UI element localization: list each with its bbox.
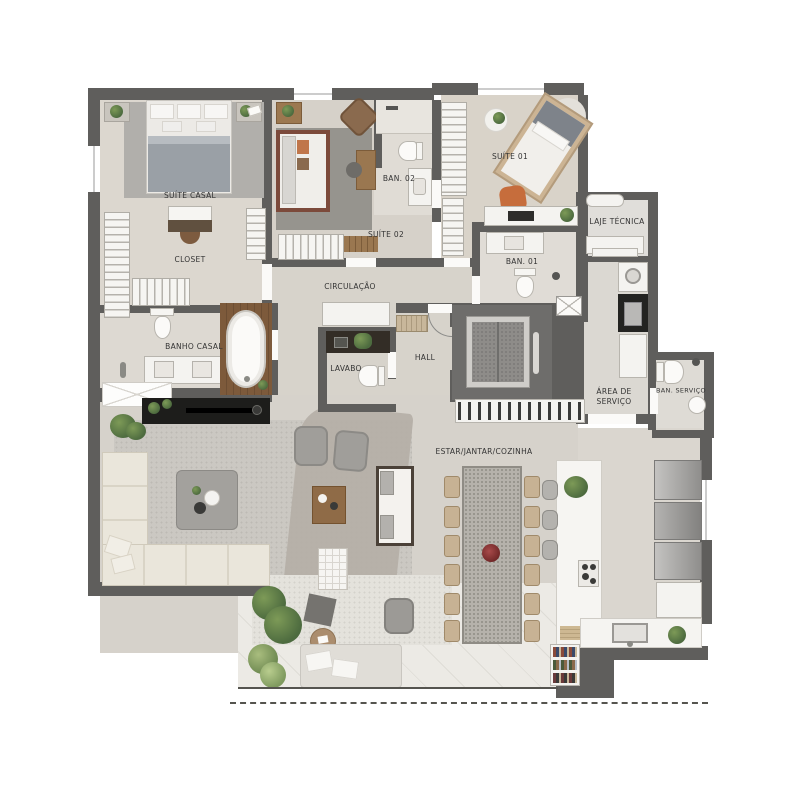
dining-chair — [524, 620, 540, 642]
shower-head-icon — [692, 358, 700, 366]
toilet — [656, 362, 664, 382]
bed-pillow — [297, 140, 309, 154]
wardrobe — [278, 234, 344, 260]
books — [553, 673, 577, 683]
dining-chair — [524, 564, 540, 586]
door-lavabo — [388, 352, 396, 378]
burner — [582, 564, 588, 570]
armchair — [332, 430, 369, 473]
dining-chair — [444, 593, 460, 615]
tv — [186, 408, 256, 413]
room-label-ban-servico: BAN. SERVIÇO — [656, 387, 706, 396]
plant — [192, 486, 201, 495]
tray — [194, 502, 206, 514]
kitchen-sink — [612, 623, 648, 643]
toilet — [154, 316, 171, 339]
bar-stool — [542, 510, 558, 530]
plant — [282, 105, 294, 117]
books — [553, 647, 577, 657]
room-label-circulacao: CIRCULAÇÃO — [324, 282, 376, 292]
dining-chair — [444, 506, 460, 528]
wood-side-table — [312, 486, 346, 524]
laptop — [508, 211, 534, 221]
closet-rack — [132, 278, 190, 306]
plant — [493, 112, 505, 124]
console-table — [322, 302, 390, 326]
door-ban-02 — [432, 180, 441, 208]
plant — [564, 476, 588, 498]
doormat — [396, 315, 428, 332]
door-ban-01 — [472, 276, 480, 304]
burner — [590, 578, 596, 584]
tub-faucet — [244, 376, 250, 382]
cabinet — [619, 334, 647, 378]
dining-chair — [524, 593, 540, 615]
closet-wardrobe — [246, 208, 266, 260]
wall — [556, 684, 614, 698]
sofa-cushion — [380, 471, 394, 495]
wall — [90, 88, 272, 100]
toilet — [514, 268, 536, 276]
decor-item — [330, 502, 338, 510]
dining-chair — [524, 506, 540, 528]
room-label-suite-casal: SUÍTE CASAL — [164, 191, 216, 201]
room-label-area-servico-line1: ÁREA DE — [596, 387, 631, 397]
room-label-hall: HALL — [415, 353, 435, 363]
desk-chair — [346, 162, 362, 178]
cooktop — [578, 560, 599, 587]
toilet — [150, 308, 174, 316]
bed-pillow — [282, 136, 296, 204]
room-label-closet: CLOSET — [175, 255, 206, 265]
plant — [110, 105, 123, 118]
sink-basin — [504, 236, 524, 250]
cabinet — [656, 582, 702, 618]
wall — [652, 430, 714, 438]
plant — [148, 402, 160, 414]
bar-stool — [542, 540, 558, 560]
room-label-laje-tecnica: LAJE TÉCNICA — [589, 217, 644, 227]
wine-rack — [456, 400, 584, 422]
toilet — [664, 360, 684, 384]
bed-pillow — [150, 104, 174, 119]
wall — [318, 404, 396, 412]
wardrobe — [441, 102, 467, 196]
speaker — [252, 405, 262, 415]
laundry-sink — [624, 302, 642, 326]
terrace-armchair — [384, 598, 414, 634]
terrace-ottoman — [303, 593, 336, 626]
entry-door — [428, 304, 452, 313]
shower-fixture — [120, 362, 126, 378]
bed-pillow — [177, 104, 201, 119]
wall — [88, 88, 100, 338]
room-label-banho-casal: BANHO CASAL — [165, 342, 223, 352]
grid-ottoman — [318, 548, 348, 590]
burner — [582, 573, 589, 580]
room-label-ban-02: BAN. 02 — [383, 174, 415, 184]
dining-chair — [444, 476, 460, 498]
toilet — [416, 142, 423, 160]
shower-head-icon — [386, 106, 398, 110]
sink-basin — [154, 361, 174, 378]
closet-dresser-front — [168, 220, 212, 232]
plant — [354, 333, 372, 349]
bar-stool — [542, 480, 558, 500]
burner — [590, 564, 596, 570]
closet-rack — [104, 212, 130, 318]
wall — [88, 410, 100, 584]
toilet — [398, 141, 417, 161]
dining-chair — [524, 535, 540, 557]
plant — [258, 380, 268, 390]
plant — [162, 399, 172, 409]
door-suite-02 — [346, 258, 376, 267]
plant — [126, 422, 146, 440]
dining-chair — [444, 620, 460, 642]
door-suite-casal — [262, 264, 272, 300]
wall — [648, 192, 658, 360]
books — [553, 660, 577, 670]
room-label-ban-01: BAN. 01 — [506, 257, 538, 267]
room-label-area-servico-line2: SERVIÇO — [596, 397, 631, 407]
room-label-lavabo: LAVABO — [330, 364, 362, 374]
window — [478, 83, 544, 95]
tray — [204, 490, 220, 506]
sofa-cushion — [380, 515, 394, 539]
tall-cabinet-oven — [654, 502, 702, 540]
tall-cabinet-fridge — [654, 460, 702, 500]
floor-plan: SUÍTE CASAL CLOSET SUÍTE 02 BAN. 02 SUÍT… — [0, 0, 800, 795]
flower-centerpiece — [482, 544, 500, 562]
room-label-area-servico: ÁREA DE SERVIÇO — [596, 387, 631, 407]
equipment — [592, 248, 638, 257]
plant — [264, 606, 302, 644]
bed-blanket — [148, 136, 230, 192]
bed-pillow — [196, 121, 216, 132]
sink-basin — [334, 337, 348, 348]
room-label-suite-01: SUÍTE 01 — [492, 152, 528, 162]
sink-basin — [192, 361, 212, 378]
terrace-boundary-dashed — [230, 702, 708, 704]
plant — [260, 662, 286, 688]
window — [88, 146, 100, 192]
equipment — [586, 194, 624, 207]
room-label-suite-02: SUÍTE 02 — [368, 230, 404, 240]
door-suite-01 — [444, 258, 470, 267]
shower-area — [376, 100, 432, 134]
armchair — [294, 426, 328, 466]
terrace-edge-line — [238, 687, 558, 689]
elevator-handrail — [533, 332, 539, 374]
sink-basin — [688, 396, 706, 414]
room-label-estar-jantar-cozinha: ESTAR/JANTAR/COZINHA — [436, 447, 533, 457]
toilet — [516, 276, 534, 298]
faucet — [627, 641, 633, 647]
bed-pillow — [297, 158, 309, 170]
basket — [560, 626, 580, 640]
door-area-servico — [588, 414, 636, 424]
decor-item — [318, 494, 327, 503]
tall-cabinet — [654, 542, 702, 580]
dining-chair — [444, 564, 460, 586]
bed-pillow — [204, 104, 228, 119]
shower-head-icon — [552, 272, 560, 280]
toilet — [378, 366, 385, 386]
bed-pillow — [162, 121, 182, 132]
washing-machine-door — [625, 268, 641, 284]
elevator-door-split — [497, 322, 499, 382]
wardrobe — [442, 198, 464, 256]
duct-shaft — [556, 296, 582, 316]
dining-chair — [444, 535, 460, 557]
bookshelf — [550, 644, 580, 686]
dining-chair — [524, 476, 540, 498]
plant — [668, 626, 686, 644]
daybed-pillow — [331, 658, 359, 679]
window — [294, 88, 332, 100]
plant — [560, 208, 574, 222]
